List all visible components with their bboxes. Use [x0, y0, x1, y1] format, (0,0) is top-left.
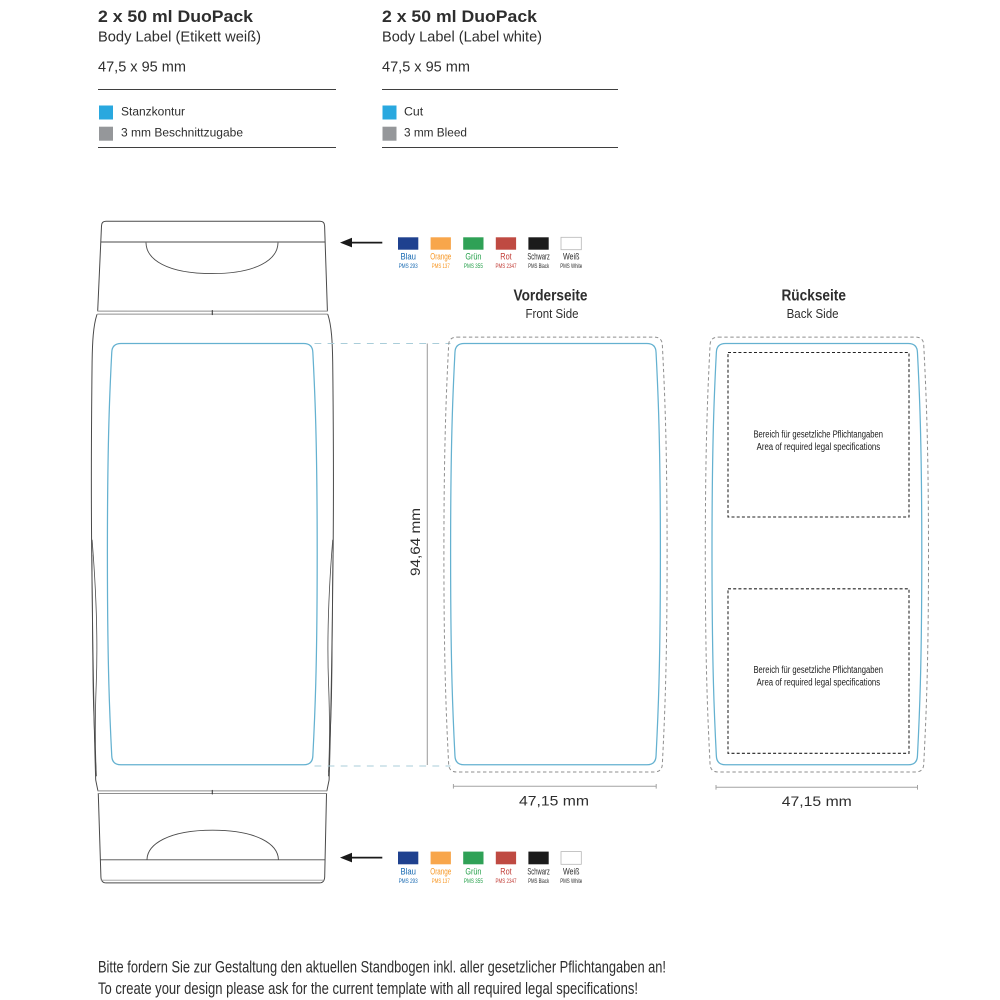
- svg-text:Schwarz: Schwarz: [527, 867, 550, 877]
- svg-text:To create your design please a: To create your design please ask for the…: [98, 980, 638, 998]
- svg-text:Area of required legal specifi: Area of required legal specifications: [757, 442, 881, 453]
- svg-text:Bereich für gesetzliche Pflich: Bereich für gesetzliche Pflichtangaben: [753, 665, 883, 676]
- svg-text:94,64 mm: 94,64 mm: [408, 508, 423, 576]
- svg-text:PMS White: PMS White: [560, 878, 582, 885]
- svg-text:Weiß: Weiß: [563, 867, 580, 877]
- svg-text:PMS 2347: PMS 2347: [496, 878, 517, 885]
- svg-text:Front Side: Front Side: [526, 306, 579, 321]
- svg-text:PMS 293: PMS 293: [399, 878, 418, 885]
- svg-text:47,5 x 95 mm: 47,5 x 95 mm: [98, 59, 186, 75]
- svg-text:PMS 2347: PMS 2347: [496, 263, 517, 270]
- svg-text:Orange: Orange: [430, 252, 451, 262]
- svg-text:PMS Black: PMS Black: [528, 263, 550, 270]
- svg-text:2 x 50 ml DuoPack: 2 x 50 ml DuoPack: [382, 7, 538, 26]
- svg-text:PMS 137: PMS 137: [432, 878, 450, 885]
- svg-text:Blau: Blau: [400, 867, 416, 877]
- svg-text:47,15 mm: 47,15 mm: [519, 794, 589, 809]
- svg-text:47,5 x 95 mm: 47,5 x 95 mm: [382, 59, 470, 75]
- svg-text:3 mm Bleed: 3 mm Bleed: [404, 126, 467, 140]
- svg-text:Back Side: Back Side: [787, 306, 839, 321]
- svg-text:PMS 355: PMS 355: [464, 878, 483, 885]
- svg-text:Blau: Blau: [400, 252, 416, 262]
- svg-text:Rückseite: Rückseite: [781, 287, 846, 304]
- svg-text:Weiß: Weiß: [563, 252, 580, 262]
- svg-text:3 mm Beschnittzugabe: 3 mm Beschnittzugabe: [121, 126, 243, 140]
- svg-text:2 x 50 ml DuoPack: 2 x 50 ml DuoPack: [98, 7, 254, 26]
- svg-text:Vorderseite: Vorderseite: [514, 287, 588, 304]
- svg-text:Rot: Rot: [500, 867, 512, 877]
- svg-text:Rot: Rot: [500, 252, 512, 262]
- svg-text:Grün: Grün: [465, 252, 481, 262]
- svg-text:Body Label (Etikett weiß): Body Label (Etikett weiß): [98, 30, 261, 46]
- svg-text:PMS White: PMS White: [560, 263, 582, 270]
- svg-text:Cut: Cut: [404, 105, 424, 119]
- svg-text:Grün: Grün: [465, 867, 481, 877]
- svg-text:PMS 293: PMS 293: [399, 263, 418, 270]
- svg-text:Area of required legal specifi: Area of required legal specifications: [757, 678, 881, 689]
- svg-text:Stanzkontur: Stanzkontur: [121, 105, 185, 119]
- svg-text:PMS 355: PMS 355: [464, 263, 483, 270]
- svg-text:Bereich für gesetzliche Pflich: Bereich für gesetzliche Pflichtangaben: [753, 429, 883, 440]
- svg-text:Body Label (Label white): Body Label (Label white): [382, 30, 542, 46]
- svg-text:Orange: Orange: [430, 867, 451, 877]
- svg-text:47,15 mm: 47,15 mm: [782, 794, 852, 809]
- svg-text:Bitte fordern Sie zur Gestaltu: Bitte fordern Sie zur Gestaltung den akt…: [98, 959, 666, 977]
- svg-text:PMS Black: PMS Black: [528, 878, 550, 885]
- svg-text:PMS 137: PMS 137: [432, 263, 450, 270]
- svg-text:Schwarz: Schwarz: [527, 252, 550, 262]
